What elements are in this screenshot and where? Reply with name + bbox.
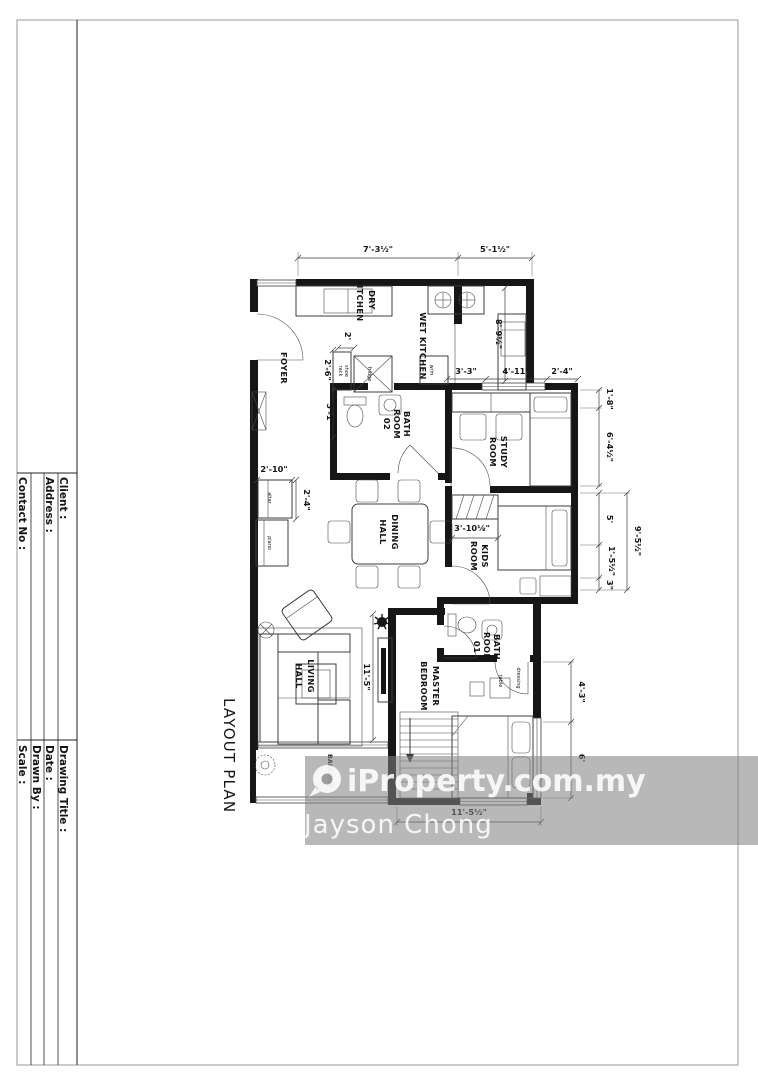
- title-block-drawn-by-label: Drawn By :: [30, 745, 42, 810]
- drawing-sheet: Client : Address : Contact No : Drawing …: [0, 0, 758, 1080]
- side-table: [258, 622, 274, 638]
- floor-plan: 7'-3½" 5'-1½" 8'-9½" 3'-3" 4'-11" 2'-4": [250, 244, 643, 826]
- sheet-border: [17, 20, 738, 1065]
- title-block-client-label: Client :: [57, 477, 69, 519]
- dim-label: 4'-3": [577, 681, 587, 703]
- room-label-bath2: 02: [382, 418, 392, 430]
- room-label-dining: DINING: [390, 514, 400, 550]
- room-label-dry-kitchen: KITCHEN: [355, 279, 365, 322]
- dim-label: 9'-5½": [633, 526, 643, 556]
- dim-label: 8'-9½": [494, 319, 504, 349]
- title-block-date-label: Date :: [43, 745, 55, 781]
- furniture-label-piano: piano: [266, 536, 272, 550]
- dim-study-row: 3'-3" 4'-11" 2'-4": [444, 366, 581, 382]
- kids-desk: [540, 576, 571, 596]
- title-block-scale-label: Scale :: [16, 745, 28, 784]
- drawing-sheet-page: Client : Address : Contact No : Drawing …: [0, 0, 758, 1080]
- dim-right-study: 1'-8" 6'-4½": [580, 387, 615, 489]
- dim-top: 7'-3½" 5'-1½": [295, 244, 535, 276]
- dim-kids-interior: 3'-10⅛": [449, 523, 501, 541]
- furniture-label-altar: altar: [266, 492, 272, 504]
- dressing-stool: [470, 682, 484, 696]
- toilet-02-icon: [344, 397, 366, 427]
- fridge: [354, 356, 392, 392]
- room-label-study: STUDY: [499, 436, 509, 469]
- title-block-contact-label: Contact No :: [16, 477, 28, 550]
- dim-living: 11'-5": [362, 611, 376, 743]
- title-block-drawing-title-label: Drawing Title :: [57, 745, 69, 832]
- room-label-kids: KIDS: [480, 544, 490, 568]
- dining-chairs: [328, 480, 452, 588]
- dim-label: 1'-5½": [607, 546, 617, 576]
- room-label-bath1: ROOM: [482, 632, 492, 662]
- room-label-master: BEDROOM: [419, 661, 429, 711]
- plan-title: LAYOUT PLAN: [220, 698, 238, 813]
- furniture-label-fridge: fridge: [366, 367, 372, 382]
- kids-bed: [498, 506, 571, 570]
- dim-label: 3": [605, 580, 615, 590]
- room-label-master: MASTER: [431, 666, 441, 706]
- dim-label: 7'-3½": [363, 244, 393, 254]
- room-label-foyer: FOYER: [279, 352, 289, 384]
- room-label-living: LIVING: [306, 659, 316, 692]
- watermark-agent: Jayson Chong: [302, 810, 493, 840]
- dim-label: 5'-1½": [480, 244, 510, 254]
- room-label-living: HALL: [294, 663, 304, 689]
- dim-label: 2'-4": [302, 489, 312, 511]
- furniture-label-rack: rack: [337, 366, 343, 377]
- furniture: [252, 286, 571, 798]
- room-label-bath1: 01: [472, 641, 482, 653]
- dim-right-kids: 5' 1'-5½" 3" 9'-5½": [580, 490, 643, 593]
- furniture-label-table: table: [497, 675, 503, 688]
- room-label-bath2: BATH: [402, 411, 412, 437]
- furniture-label-wm: w/m: [428, 365, 434, 376]
- dim-label: 2'-10": [260, 464, 287, 474]
- dim-label: 2'-4": [551, 366, 573, 376]
- balcony-plant-icon: [255, 755, 275, 775]
- dining-table: [352, 504, 428, 564]
- dim-label: 11'-5": [362, 663, 372, 690]
- room-label-kids: ROOM: [469, 541, 479, 571]
- dim-label: 3'-10⅛": [454, 523, 490, 533]
- watermark-brand: iProperty.com.my: [347, 764, 646, 799]
- dim-label: 5'-1": [325, 403, 335, 425]
- dim-dining: 2'-10" 2'-4": [254, 464, 312, 522]
- watermark: iProperty.com.my Jayson Chong: [302, 756, 758, 845]
- dim-label: 5': [605, 515, 615, 523]
- furniture-label-dressing: dressing: [515, 667, 521, 688]
- plant-icon: [374, 614, 390, 629]
- toilet-01-icon: [448, 614, 476, 636]
- room-label-wet-kitchen: WET KITCHEN: [418, 312, 428, 380]
- kids-wardrobe: [452, 495, 498, 519]
- dim-label: 1'-8": [605, 388, 615, 410]
- room-label-dry-kitchen: DRY: [367, 290, 377, 310]
- room-label-bath1: BATH: [492, 634, 502, 660]
- room-label-study: ROOM: [488, 437, 498, 467]
- study-bed: [530, 393, 571, 486]
- title-block: Client : Address : Contact No : Drawing …: [16, 20, 77, 1065]
- dim-label: 6'-4½": [605, 432, 615, 462]
- dim-label: 4'-11": [502, 366, 529, 376]
- dim-label: 3'-3": [455, 366, 477, 376]
- title-block-address-label: Address :: [43, 477, 55, 533]
- dim-label: 2'-6": [323, 359, 333, 381]
- room-label-dining: HALL: [378, 519, 388, 545]
- dim-label: 2': [343, 332, 353, 340]
- room-label-bath2: ROOM: [392, 409, 402, 439]
- altar: [258, 480, 292, 518]
